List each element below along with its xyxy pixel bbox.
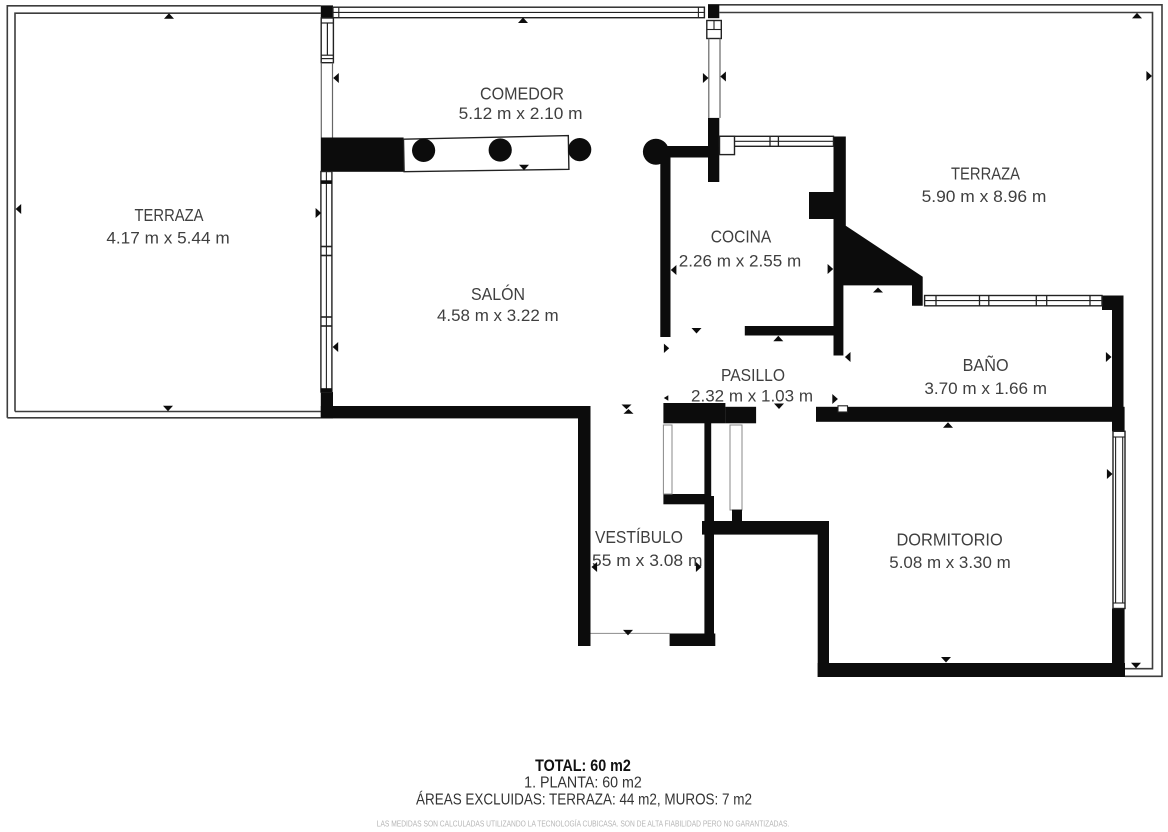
- svg-text:SALÓN: SALÓN: [471, 283, 525, 304]
- svg-text:TERRAZA: TERRAZA: [135, 205, 204, 225]
- svg-text:TERRAZA: TERRAZA: [951, 164, 1020, 184]
- svg-text:TOTAL: 60 m2: TOTAL: 60 m2: [535, 756, 631, 775]
- svg-text:COCINA: COCINA: [711, 227, 772, 247]
- svg-text:VESTÍBULO: VESTÍBULO: [595, 527, 683, 547]
- svg-text:LAS MEDIDAS SON CALCULADAS UTI: LAS MEDIDAS SON CALCULADAS UTILIZANDO LA…: [377, 820, 790, 829]
- svg-text:2.32 m x 1.03 m: 2.32 m x 1.03 m: [691, 387, 813, 406]
- svg-text:5.08 m x 3.30 m: 5.08 m x 3.30 m: [889, 553, 1010, 572]
- svg-text:DORMITORIO: DORMITORIO: [896, 530, 1002, 550]
- svg-text:COMEDOR: COMEDOR: [480, 84, 564, 104]
- svg-text:3.70 m x 1.66 m: 3.70 m x 1.66 m: [924, 379, 1047, 398]
- svg-text:PASILLO: PASILLO: [721, 365, 785, 385]
- svg-text:4.58 m x 3.22 m: 4.58 m x 3.22 m: [437, 306, 559, 325]
- svg-text:5.12 m x 2.10 m: 5.12 m x 2.10 m: [459, 104, 583, 123]
- svg-text:2.26 m x 2.55 m: 2.26 m x 2.55 m: [679, 251, 802, 270]
- svg-text:1. PLANTA: 60 m2: 1. PLANTA: 60 m2: [524, 774, 642, 791]
- svg-text:4.17 m x 5.44 m: 4.17 m x 5.44 m: [106, 229, 229, 248]
- svg-text:BAÑO: BAÑO: [963, 354, 1009, 375]
- svg-text:ÁREAS EXCLUIDAS: TERRAZA: 44 m: ÁREAS EXCLUIDAS: TERRAZA: 44 m2, MUROS: …: [416, 792, 752, 809]
- svg-text:5.90 m x 8.96 m: 5.90 m x 8.96 m: [922, 187, 1047, 206]
